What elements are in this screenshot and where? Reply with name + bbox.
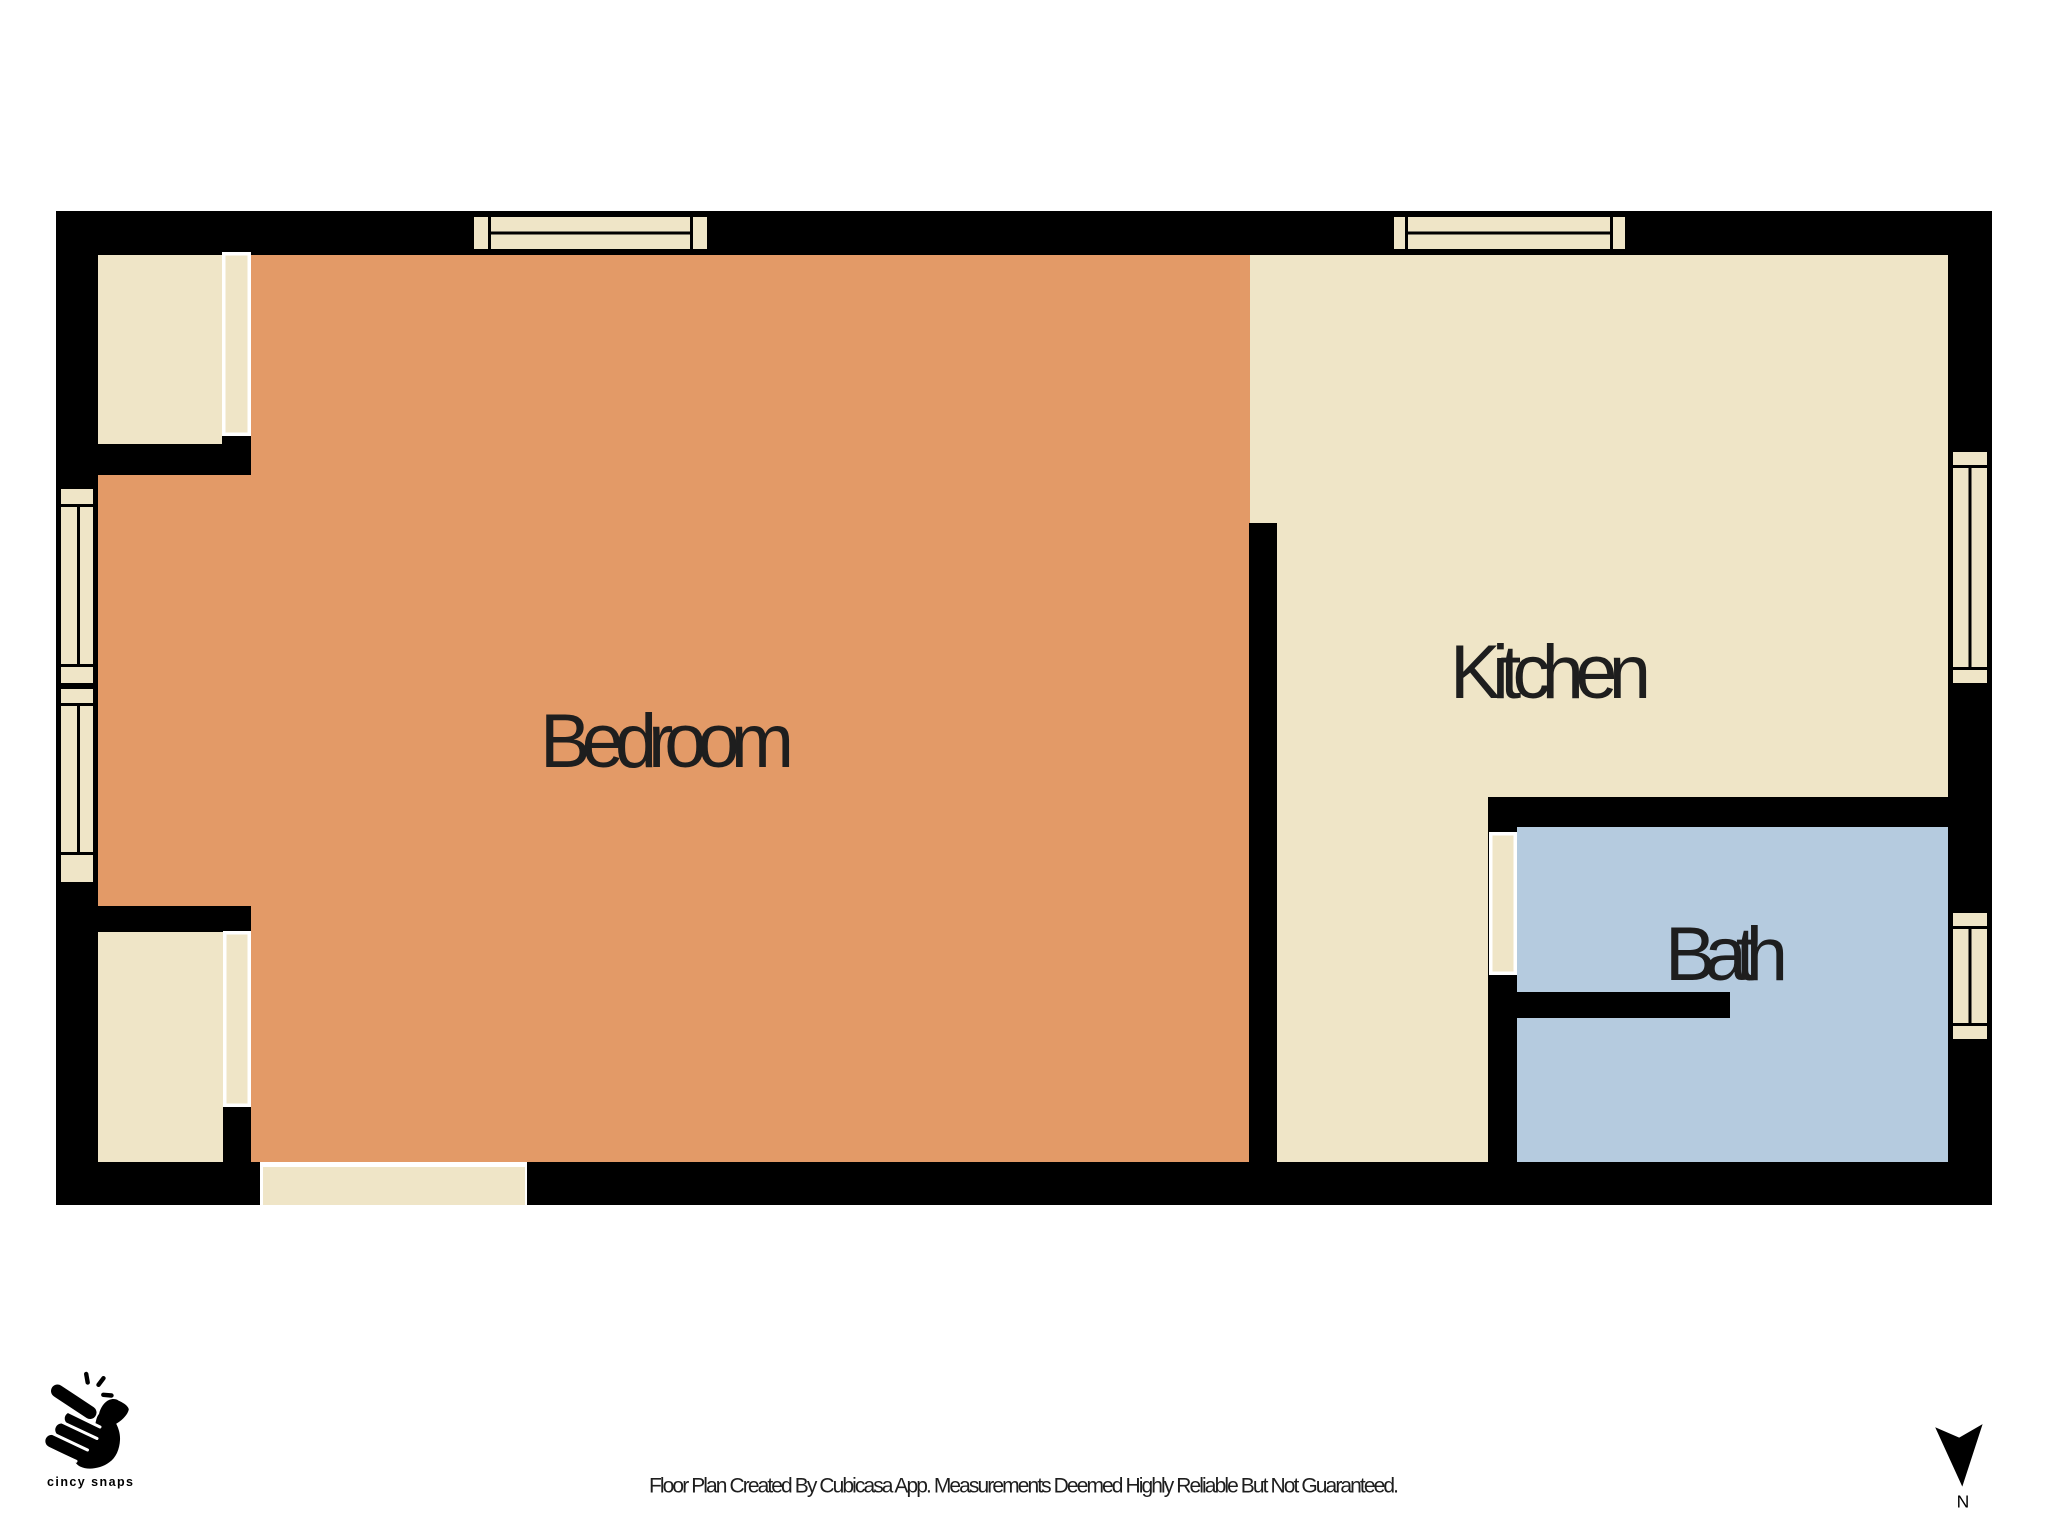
svg-text:Bath: Bath <box>1665 912 1788 997</box>
svg-text:Kitchen: Kitchen <box>1450 630 1651 715</box>
svg-text:N: N <box>1957 1492 1970 1512</box>
svg-text:Bedroom: Bedroom <box>540 699 794 784</box>
svg-text:Floor Plan Created By Cubicasa: Floor Plan Created By Cubicasa App. Meas… <box>649 1475 1399 1498</box>
